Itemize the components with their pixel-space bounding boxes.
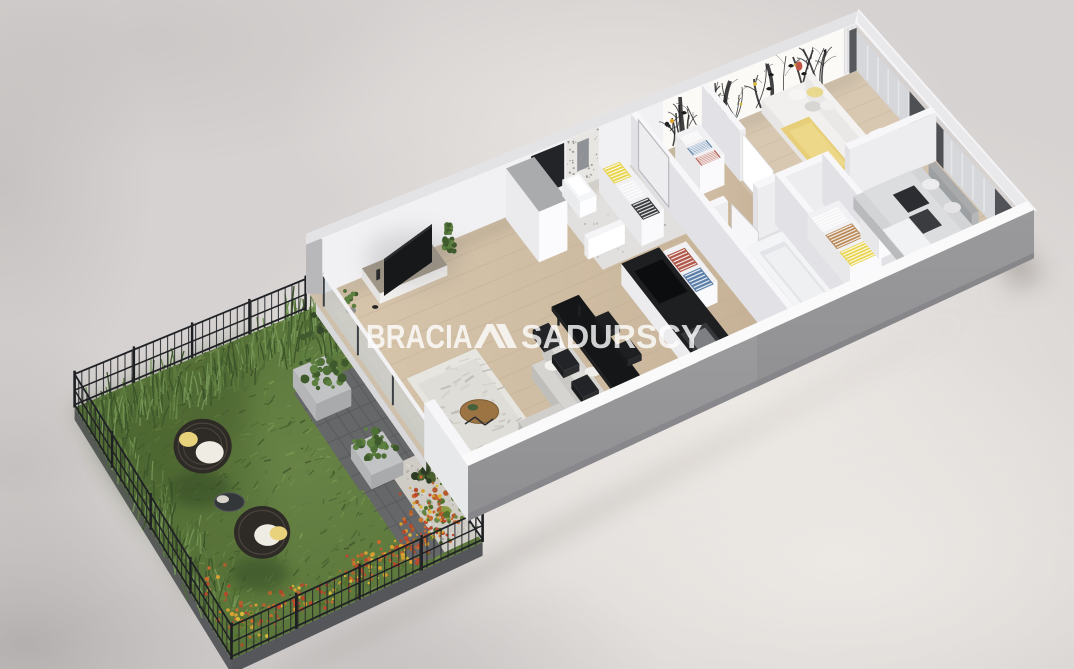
svg-text:BRACIA: BRACIA <box>366 320 473 356</box>
svg-text:SADURSCY: SADURSCY <box>521 318 703 355</box>
